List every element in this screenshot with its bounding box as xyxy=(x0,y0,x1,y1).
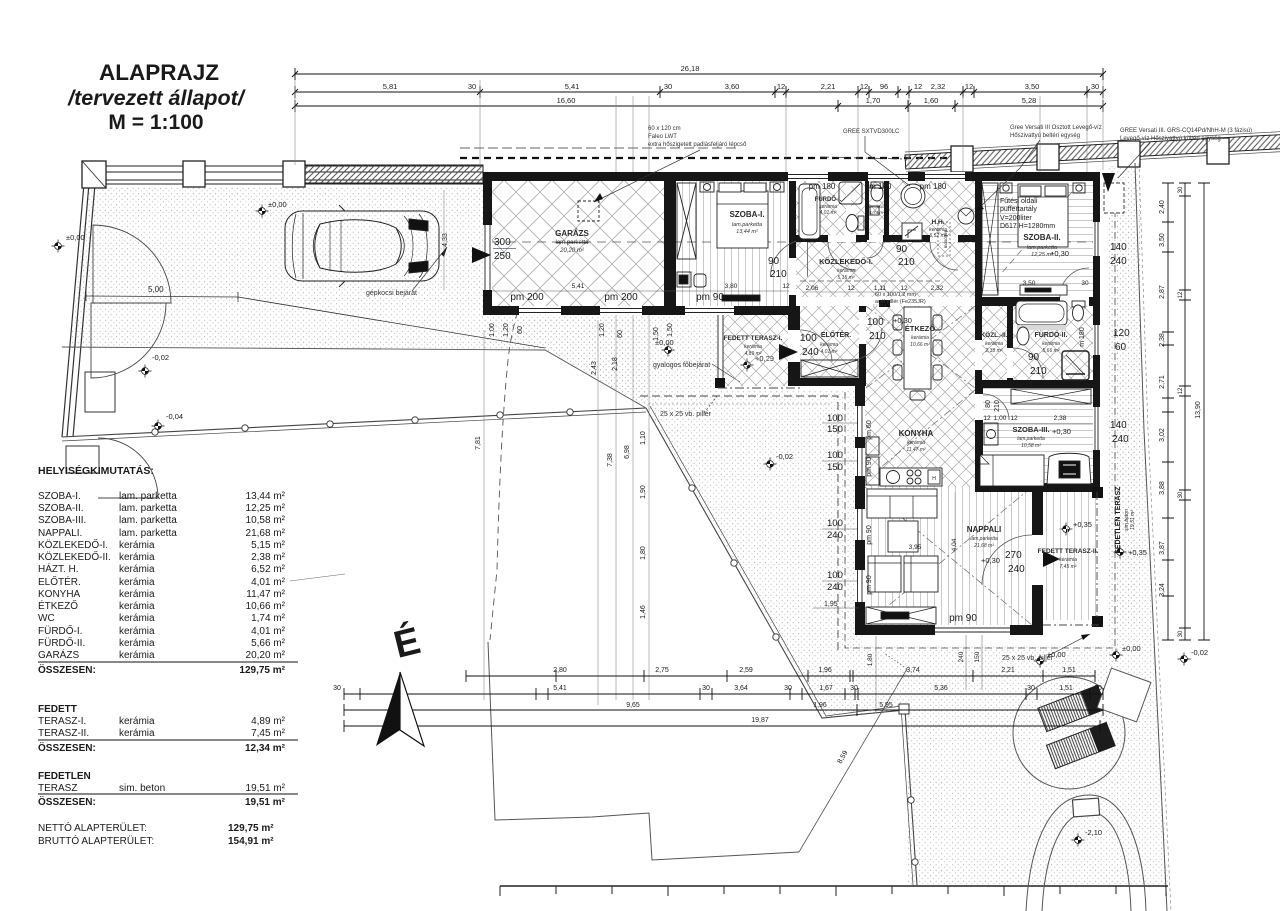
svg-text:2,59: 2,59 xyxy=(739,667,753,674)
svg-text:-0,02: -0,02 xyxy=(776,452,793,461)
svg-text:5,28: 5,28 xyxy=(1022,96,1037,105)
svg-text:FÜRDŐ-II.: FÜRDŐ-II. xyxy=(1034,330,1067,339)
svg-text:+0,30: +0,30 xyxy=(981,556,1000,565)
svg-text:kerámia: kerámia xyxy=(1059,557,1077,563)
svg-text:5,66 m²: 5,66 m² xyxy=(1043,348,1060,354)
svg-text:19,87: 19,87 xyxy=(751,717,769,724)
svg-text:Faleo LWT: Faleo LWT xyxy=(648,134,677,140)
svg-text:240: 240 xyxy=(958,651,965,662)
svg-text:90: 90 xyxy=(896,244,908,255)
svg-text:25 x 25 vb. pillér: 25 x 25 vb. pillér xyxy=(1002,655,1054,662)
svg-text:129,75 m²: 129,75 m² xyxy=(228,823,274,834)
svg-text:30: 30 xyxy=(1178,186,1184,193)
svg-text:60: 60 xyxy=(617,330,624,338)
svg-text:+0,35: +0,35 xyxy=(1128,548,1147,557)
svg-text:kerámia: kerámia xyxy=(119,577,155,588)
svg-text:3,64: 3,64 xyxy=(734,685,748,692)
svg-text:NAPPALI.: NAPPALI. xyxy=(38,528,82,539)
svg-text:±0,00: ±0,00 xyxy=(66,233,85,242)
svg-text:pm 180: pm 180 xyxy=(865,182,892,191)
svg-text:pm 90: pm 90 xyxy=(866,457,873,477)
svg-text:WC: WC xyxy=(38,613,55,624)
svg-text:H: H xyxy=(932,476,936,482)
svg-text:21,68 m²: 21,68 m² xyxy=(246,528,286,539)
svg-text:60: 60 xyxy=(1115,342,1127,353)
svg-text:30: 30 xyxy=(702,685,710,692)
svg-text:240: 240 xyxy=(1112,434,1129,445)
svg-text:210: 210 xyxy=(898,257,915,268)
svg-text:SZOBA-II.: SZOBA-II. xyxy=(1023,233,1060,242)
svg-text:/tervezett állapot/: /tervezett állapot/ xyxy=(67,86,246,110)
svg-text:3,60: 3,60 xyxy=(725,82,740,91)
svg-text:100: 100 xyxy=(827,570,843,581)
svg-text:9,65: 9,65 xyxy=(626,702,640,709)
svg-text:pm 90: pm 90 xyxy=(949,613,977,624)
svg-text:extra hőszigetelt padlásfeljár: extra hőszigetelt padlásfeljáró lépcső xyxy=(648,142,747,148)
svg-text:3,80: 3,80 xyxy=(725,283,738,290)
svg-text:1,11: 1,11 xyxy=(874,285,887,292)
svg-text:60: 60 xyxy=(517,326,524,334)
svg-text:7,81: 7,81 xyxy=(475,436,482,450)
svg-text:ELŐTÉR.: ELŐTÉR. xyxy=(821,330,851,339)
svg-text:kerámia: kerámia xyxy=(119,728,155,739)
svg-text:30: 30 xyxy=(1091,82,1099,91)
svg-text:12: 12 xyxy=(983,415,991,422)
svg-text:12: 12 xyxy=(782,283,790,290)
svg-text:pm 60: pm 60 xyxy=(866,420,873,440)
svg-text:4,01 m²: 4,01 m² xyxy=(821,349,838,355)
svg-text:lam. parketta: lam. parketta xyxy=(119,503,177,514)
svg-text:12: 12 xyxy=(1178,291,1184,298)
svg-text:kerámia: kerámia xyxy=(820,342,838,348)
svg-text:6,52 m²: 6,52 m² xyxy=(251,564,286,575)
svg-text:60 x 100/1 2 mm: 60 x 100/1 2 mm xyxy=(875,292,916,298)
svg-text:30: 30 xyxy=(333,685,341,692)
svg-text:1,20: 1,20 xyxy=(503,323,510,337)
svg-text:3,24: 3,24 xyxy=(1159,583,1166,597)
svg-text:FEDETT TERASZ-II.: FEDETT TERASZ-II. xyxy=(1038,548,1099,555)
svg-text:gépkocsi bejárat: gépkocsi bejárat xyxy=(366,290,417,297)
svg-text:6,52 m²: 6,52 m² xyxy=(930,233,947,239)
svg-text:96: 96 xyxy=(880,82,888,91)
svg-text:3,95: 3,95 xyxy=(909,544,922,551)
svg-text:3,88: 3,88 xyxy=(1159,481,1166,495)
svg-text:210: 210 xyxy=(869,331,886,342)
svg-text:12: 12 xyxy=(1010,415,1018,422)
svg-text:120: 120 xyxy=(1113,328,1130,339)
svg-text:SZOBA-II.: SZOBA-II. xyxy=(38,503,84,514)
svg-text:100: 100 xyxy=(867,317,884,328)
svg-text:1,70: 1,70 xyxy=(866,96,881,105)
svg-text:1,50: 1,50 xyxy=(653,327,660,341)
svg-text:GREE Versati III. GRS-CQ14Pd/N: GREE Versati III. GRS-CQ14Pd/NhH-M (3 fá… xyxy=(1120,128,1252,134)
svg-text:±0,00: ±0,00 xyxy=(268,200,287,209)
svg-text:30: 30 xyxy=(1027,685,1035,692)
svg-text:kerámia: kerámia xyxy=(119,552,155,563)
svg-text:FEDETLEN: FEDETLEN xyxy=(38,771,91,782)
svg-text:Gree Versati III Osztott Leveg: Gree Versati III Osztott Levegő-víz xyxy=(1010,125,1102,131)
svg-text:-0,02: -0,02 xyxy=(1191,648,1208,657)
svg-text:30: 30 xyxy=(664,82,672,91)
svg-text:KONYHA: KONYHA xyxy=(38,589,81,600)
svg-text:1,20: 1,20 xyxy=(599,323,606,337)
svg-text:-0,04: -0,04 xyxy=(166,412,183,421)
svg-text:4,89 m²: 4,89 m² xyxy=(745,351,762,357)
svg-text:ÖSSZESEN:: ÖSSZESEN: xyxy=(38,741,96,754)
svg-text:150: 150 xyxy=(827,462,843,473)
svg-text:1,80: 1,80 xyxy=(640,546,647,560)
svg-text:lam.parketta: lam.parketta xyxy=(970,536,998,542)
svg-text:TERASZ-II.: TERASZ-II. xyxy=(38,728,89,739)
svg-text:11,47 m²: 11,47 m² xyxy=(246,589,285,600)
svg-text:KÖZLEKEDŐ-I.: KÖZLEKEDŐ-I. xyxy=(38,537,108,551)
svg-text:FÜRDŐ-I.: FÜRDŐ-I. xyxy=(38,623,82,637)
svg-text:kerámia: kerámia xyxy=(119,638,155,649)
svg-text:20,20 m²: 20,20 m² xyxy=(246,650,286,661)
svg-text:5,36: 5,36 xyxy=(934,685,948,692)
svg-text:240: 240 xyxy=(827,530,843,541)
svg-text:GARÁZS: GARÁZS xyxy=(555,229,589,238)
svg-text:30: 30 xyxy=(784,685,792,692)
svg-text:3,50: 3,50 xyxy=(1025,82,1040,91)
svg-text:lam.parketta: lam.parketta xyxy=(732,222,762,228)
svg-text:10,66 m²: 10,66 m² xyxy=(246,601,286,612)
svg-text:acél pillér (Fe235JR): acél pillér (Fe235JR) xyxy=(875,299,926,305)
svg-text:3,74: 3,74 xyxy=(906,667,920,674)
svg-text:210: 210 xyxy=(1030,366,1047,377)
svg-text:16,60: 16,60 xyxy=(557,96,576,105)
svg-text:+0,30: +0,30 xyxy=(1050,249,1069,258)
svg-text:kerámia: kerámia xyxy=(985,341,1003,347)
svg-text:FEDETT TERASZ-I.: FEDETT TERASZ-I. xyxy=(724,335,783,342)
svg-text:ELŐTÉR.: ELŐTÉR. xyxy=(38,574,81,588)
svg-text:240: 240 xyxy=(1110,256,1127,267)
svg-text:3,50: 3,50 xyxy=(1023,280,1036,287)
svg-text:5,81: 5,81 xyxy=(383,82,398,91)
svg-text:2,18: 2,18 xyxy=(612,357,619,371)
svg-text:sim. beton: sim. beton xyxy=(119,783,165,794)
svg-text:ÉTKEZŐ: ÉTKEZŐ xyxy=(38,598,78,612)
svg-text:M = 1:100: M = 1:100 xyxy=(108,111,203,134)
svg-text:H.H.: H.H. xyxy=(932,219,945,226)
svg-text:1,80: 1,80 xyxy=(867,653,874,666)
svg-text:210: 210 xyxy=(994,400,1001,412)
svg-text:ÉTKEZŐ: ÉTKEZŐ xyxy=(905,324,936,333)
svg-text:129,75 m²: 129,75 m² xyxy=(239,665,285,676)
svg-text:KONYHA: KONYHA xyxy=(899,429,934,438)
svg-text:30: 30 xyxy=(1094,685,1102,692)
svg-text:7,45 m²: 7,45 m² xyxy=(1060,564,1077,570)
svg-text:12: 12 xyxy=(965,82,973,91)
svg-text:10,66 m²: 10,66 m² xyxy=(910,342,930,348)
svg-text:3,02: 3,02 xyxy=(1159,428,1166,442)
svg-text:lam. parketta: lam. parketta xyxy=(119,515,177,526)
svg-text:2,32: 2,32 xyxy=(931,82,946,91)
svg-text:2,87: 2,87 xyxy=(1159,285,1166,299)
svg-text:lam. parketta: lam. parketta xyxy=(119,528,177,539)
svg-text:1,96: 1,96 xyxy=(813,702,827,709)
svg-text:5,95: 5,95 xyxy=(879,702,893,709)
svg-text:+0,30: +0,30 xyxy=(893,316,912,325)
svg-text:4,01 m²: 4,01 m² xyxy=(820,210,837,216)
svg-text:D617 H=1280mm: D617 H=1280mm xyxy=(1000,223,1055,230)
svg-text:V=200liter: V=200liter xyxy=(1000,215,1032,222)
svg-text:pm 180: pm 180 xyxy=(809,182,836,191)
svg-text:2,06: 2,06 xyxy=(806,285,819,292)
svg-text:kerámia: kerámia xyxy=(911,335,929,341)
svg-text:BRUTTÓ ALAPTERÜLET:: BRUTTÓ ALAPTERÜLET: xyxy=(38,834,154,847)
svg-text:KÖZLEKEDŐ-II.: KÖZLEKEDŐ-II. xyxy=(38,549,111,563)
svg-text:12,34 m²: 12,34 m² xyxy=(245,743,286,754)
svg-text:150: 150 xyxy=(827,424,843,435)
svg-text:lam.parketta: lam.parketta xyxy=(1017,436,1045,442)
svg-text:90: 90 xyxy=(768,256,780,267)
svg-text:25 x 25 vb. pillér: 25 x 25 vb. pillér xyxy=(660,411,712,418)
svg-text:4,01 m²: 4,01 m² xyxy=(251,626,286,637)
svg-text:3,50: 3,50 xyxy=(1159,233,1166,247)
svg-text:140: 140 xyxy=(1110,242,1127,253)
svg-text:kerámia: kerámia xyxy=(119,613,155,624)
svg-text:4,01 m²: 4,01 m² xyxy=(251,577,286,588)
svg-text:5,15 m²: 5,15 m² xyxy=(251,540,286,551)
svg-text:90: 90 xyxy=(1028,352,1040,363)
svg-text:kerámia: kerámia xyxy=(119,540,155,551)
svg-text:12: 12 xyxy=(1178,387,1184,394)
svg-text:KÖZLEKEDŐ-I.: KÖZLEKEDŐ-I. xyxy=(819,257,873,266)
svg-text:10,58 m²: 10,58 m² xyxy=(246,515,286,526)
svg-text:1,00: 1,00 xyxy=(489,323,496,337)
svg-text:SZOBA-III.: SZOBA-III. xyxy=(1012,425,1049,434)
svg-text:5,15 m²: 5,15 m² xyxy=(838,275,855,281)
svg-text:kerámia: kerámia xyxy=(119,564,155,575)
svg-text:13,44 m²: 13,44 m² xyxy=(736,229,758,235)
svg-text:60 x 120 cm: 60 x 120 cm xyxy=(648,126,681,132)
svg-text:26,18: 26,18 xyxy=(681,64,700,73)
svg-text:2,80: 2,80 xyxy=(553,667,567,674)
svg-text:2,38: 2,38 xyxy=(1159,333,1166,347)
svg-text:30: 30 xyxy=(1081,280,1089,287)
svg-text:2,32: 2,32 xyxy=(931,285,944,292)
svg-text:NETTÓ ALAPTERÜLET:: NETTÓ ALAPTERÜLET: xyxy=(38,821,147,834)
svg-text:ÖSSZESEN:: ÖSSZESEN: xyxy=(38,795,96,808)
svg-text:kerámia: kerámia xyxy=(1042,341,1060,347)
svg-text:2,38: 2,38 xyxy=(1054,415,1067,422)
svg-text:1,96: 1,96 xyxy=(818,667,832,674)
svg-text:-0,02: -0,02 xyxy=(152,353,169,362)
svg-text:2,21: 2,21 xyxy=(821,82,836,91)
svg-text:lam. parketta: lam. parketta xyxy=(119,491,177,502)
svg-text:4,04: 4,04 xyxy=(951,538,958,551)
svg-text:FÜRDŐ-I.: FÜRDŐ-I. xyxy=(815,196,842,203)
svg-text:-2,10: -2,10 xyxy=(1085,828,1102,837)
svg-text:kerámia: kerámia xyxy=(119,589,155,600)
svg-text:6,98: 6,98 xyxy=(624,445,631,459)
svg-text:SZOBA-I.: SZOBA-I. xyxy=(38,491,81,502)
svg-text:kerámia: kerámia xyxy=(119,626,155,637)
svg-text:FEDETT: FEDETT xyxy=(38,704,77,715)
svg-text:5,41: 5,41 xyxy=(553,685,567,692)
svg-text:240: 240 xyxy=(802,347,819,358)
svg-text:1,46: 1,46 xyxy=(640,605,647,619)
svg-text:150: 150 xyxy=(974,651,981,662)
svg-text:12,25 m²: 12,25 m² xyxy=(246,503,286,514)
svg-text:20,20 m²: 20,20 m² xyxy=(559,248,585,254)
svg-text:2,21: 2,21 xyxy=(1001,667,1015,674)
svg-text:1,60: 1,60 xyxy=(924,96,939,105)
svg-text:1,95: 1,95 xyxy=(824,601,838,608)
svg-text:kerámia: kerámia xyxy=(119,716,155,727)
svg-text:5,66 m²: 5,66 m² xyxy=(251,638,286,649)
svg-text:FÜRDŐ-II.: FÜRDŐ-II. xyxy=(38,635,85,649)
svg-text:12: 12 xyxy=(777,82,785,91)
svg-text:TERASZ: TERASZ xyxy=(38,783,77,794)
svg-text:GREE SXTVD300LC: GREE SXTVD300LC xyxy=(843,129,900,135)
svg-text:30: 30 xyxy=(850,685,858,692)
svg-text:240: 240 xyxy=(827,582,843,593)
svg-text:KÖZL.-II.: KÖZL.-II. xyxy=(980,330,1007,339)
svg-text:30: 30 xyxy=(1178,491,1184,498)
svg-text:12: 12 xyxy=(900,285,908,292)
svg-text:300: 300 xyxy=(494,237,511,248)
svg-text:240: 240 xyxy=(1008,564,1025,575)
svg-text:7,45 m²: 7,45 m² xyxy=(251,728,286,739)
svg-text:5,00: 5,00 xyxy=(148,285,164,294)
svg-text:pm 180: pm 180 xyxy=(920,182,947,191)
svg-text:2,43: 2,43 xyxy=(591,361,598,375)
svg-text:4,33: 4,33 xyxy=(442,233,449,247)
svg-text:19,51 m²: 19,51 m² xyxy=(1130,510,1136,530)
svg-text:pm 90: pm 90 xyxy=(866,575,873,595)
svg-text:5,41: 5,41 xyxy=(565,82,580,91)
svg-text:kerámia: kerámia xyxy=(869,204,886,209)
svg-text:1,51: 1,51 xyxy=(1059,685,1073,692)
svg-text:13,90: 13,90 xyxy=(1195,401,1202,419)
svg-text:1,00: 1,00 xyxy=(994,415,1007,422)
svg-text:FEDETLEN TERASZ: FEDETLEN TERASZ xyxy=(1115,486,1122,554)
svg-text:pm 200: pm 200 xyxy=(604,292,638,303)
svg-text:1,10: 1,10 xyxy=(640,431,647,445)
svg-text:100: 100 xyxy=(800,333,817,344)
svg-text:140: 140 xyxy=(1110,420,1127,431)
svg-text:2,40: 2,40 xyxy=(1159,200,1166,214)
svg-text:12: 12 xyxy=(914,82,922,91)
svg-text:2,71: 2,71 xyxy=(1159,375,1166,389)
svg-text:80: 80 xyxy=(985,400,992,408)
svg-text:210: 210 xyxy=(770,269,787,280)
svg-text:kerámia: kerámia xyxy=(119,601,155,612)
svg-text:5,41: 5,41 xyxy=(572,283,585,290)
svg-text:270: 270 xyxy=(1005,550,1022,561)
svg-text:1,74 m²: 1,74 m² xyxy=(869,210,885,215)
svg-text:HÁZT. H.: HÁZT. H. xyxy=(38,562,79,575)
svg-text:Levegő-víz Hőszivattyú kültéri: Levegő-víz Hőszivattyú kültéri egység xyxy=(1120,136,1221,142)
svg-text:12: 12 xyxy=(860,82,868,91)
svg-text:19,51 m²: 19,51 m² xyxy=(246,783,286,794)
svg-text:30: 30 xyxy=(1178,630,1184,637)
svg-text:NAPPALI: NAPPALI xyxy=(967,525,1002,534)
svg-text:2,38 m²: 2,38 m² xyxy=(251,552,286,563)
svg-text:pm 200: pm 200 xyxy=(510,292,544,303)
svg-text:100: 100 xyxy=(827,413,843,424)
svg-text:SZOBA-I.: SZOBA-I. xyxy=(729,210,764,219)
svg-text:kerámia: kerámia xyxy=(119,650,155,661)
svg-text:2,75: 2,75 xyxy=(655,667,669,674)
svg-text:GARÁZS: GARÁZS xyxy=(38,648,79,661)
svg-text:+0,30: +0,30 xyxy=(1052,427,1071,436)
svg-text:19,51 m²: 19,51 m² xyxy=(245,797,286,808)
svg-text:4,89 m²: 4,89 m² xyxy=(251,716,286,727)
svg-text:11,47 m²: 11,47 m² xyxy=(906,447,926,453)
svg-text:10,58 m²: 10,58 m² xyxy=(1021,443,1041,449)
svg-text:m 180: m 180 xyxy=(1079,327,1086,347)
svg-text:lam.parketta: lam.parketta xyxy=(555,240,589,246)
svg-text:ÖSSZESEN:: ÖSSZESEN: xyxy=(38,663,96,676)
svg-text:SZOBA-III.: SZOBA-III. xyxy=(38,515,86,526)
svg-text:154,91 m²: 154,91 m² xyxy=(228,836,274,847)
svg-text:1,67: 1,67 xyxy=(819,685,833,692)
svg-text:kerámia: kerámia xyxy=(837,268,855,274)
svg-text:12: 12 xyxy=(847,285,855,292)
svg-text:±0,00: ±0,00 xyxy=(1122,644,1141,653)
svg-text:21,68 m²: 21,68 m² xyxy=(973,543,994,549)
svg-text:1,74 m²: 1,74 m² xyxy=(251,613,286,624)
svg-text:HELYISÉGKIMUTATÁS:: HELYISÉGKIMUTATÁS: xyxy=(38,464,154,477)
svg-text:30: 30 xyxy=(468,82,476,91)
svg-text:2,38 m²: 2,38 m² xyxy=(985,348,1003,354)
svg-text:Hőszivattyú beltéri egység: Hőszivattyú beltéri egység xyxy=(1010,133,1080,139)
svg-text:3,87: 3,87 xyxy=(1159,541,1166,555)
svg-text:pm 90: pm 90 xyxy=(696,292,724,303)
svg-text:puffertartály: puffertartály xyxy=(1000,206,1037,213)
svg-text:13,44 m²: 13,44 m² xyxy=(246,491,286,502)
svg-text:100: 100 xyxy=(827,518,843,529)
svg-text:kerámia: kerámia xyxy=(907,440,925,446)
svg-text:kerámia: kerámia xyxy=(744,344,762,350)
svg-text:250: 250 xyxy=(494,251,511,262)
svg-text:1,50: 1,50 xyxy=(667,323,674,337)
svg-text:100: 100 xyxy=(827,450,843,461)
svg-text:+0,35: +0,35 xyxy=(1073,520,1092,529)
svg-text:ALAPRAJZ: ALAPRAJZ xyxy=(99,60,219,85)
svg-text:TERASZ-I.: TERASZ-I. xyxy=(38,716,86,727)
svg-text:gyalogos főbejárat: gyalogos főbejárat xyxy=(653,362,710,369)
svg-text:1,90: 1,90 xyxy=(640,485,647,499)
svg-text:Fűtési oldali: Fűtési oldali xyxy=(1000,198,1038,205)
svg-text:pm 90: pm 90 xyxy=(866,525,873,545)
svg-text:7,38: 7,38 xyxy=(607,453,614,467)
svg-text:1,51: 1,51 xyxy=(1062,667,1076,674)
